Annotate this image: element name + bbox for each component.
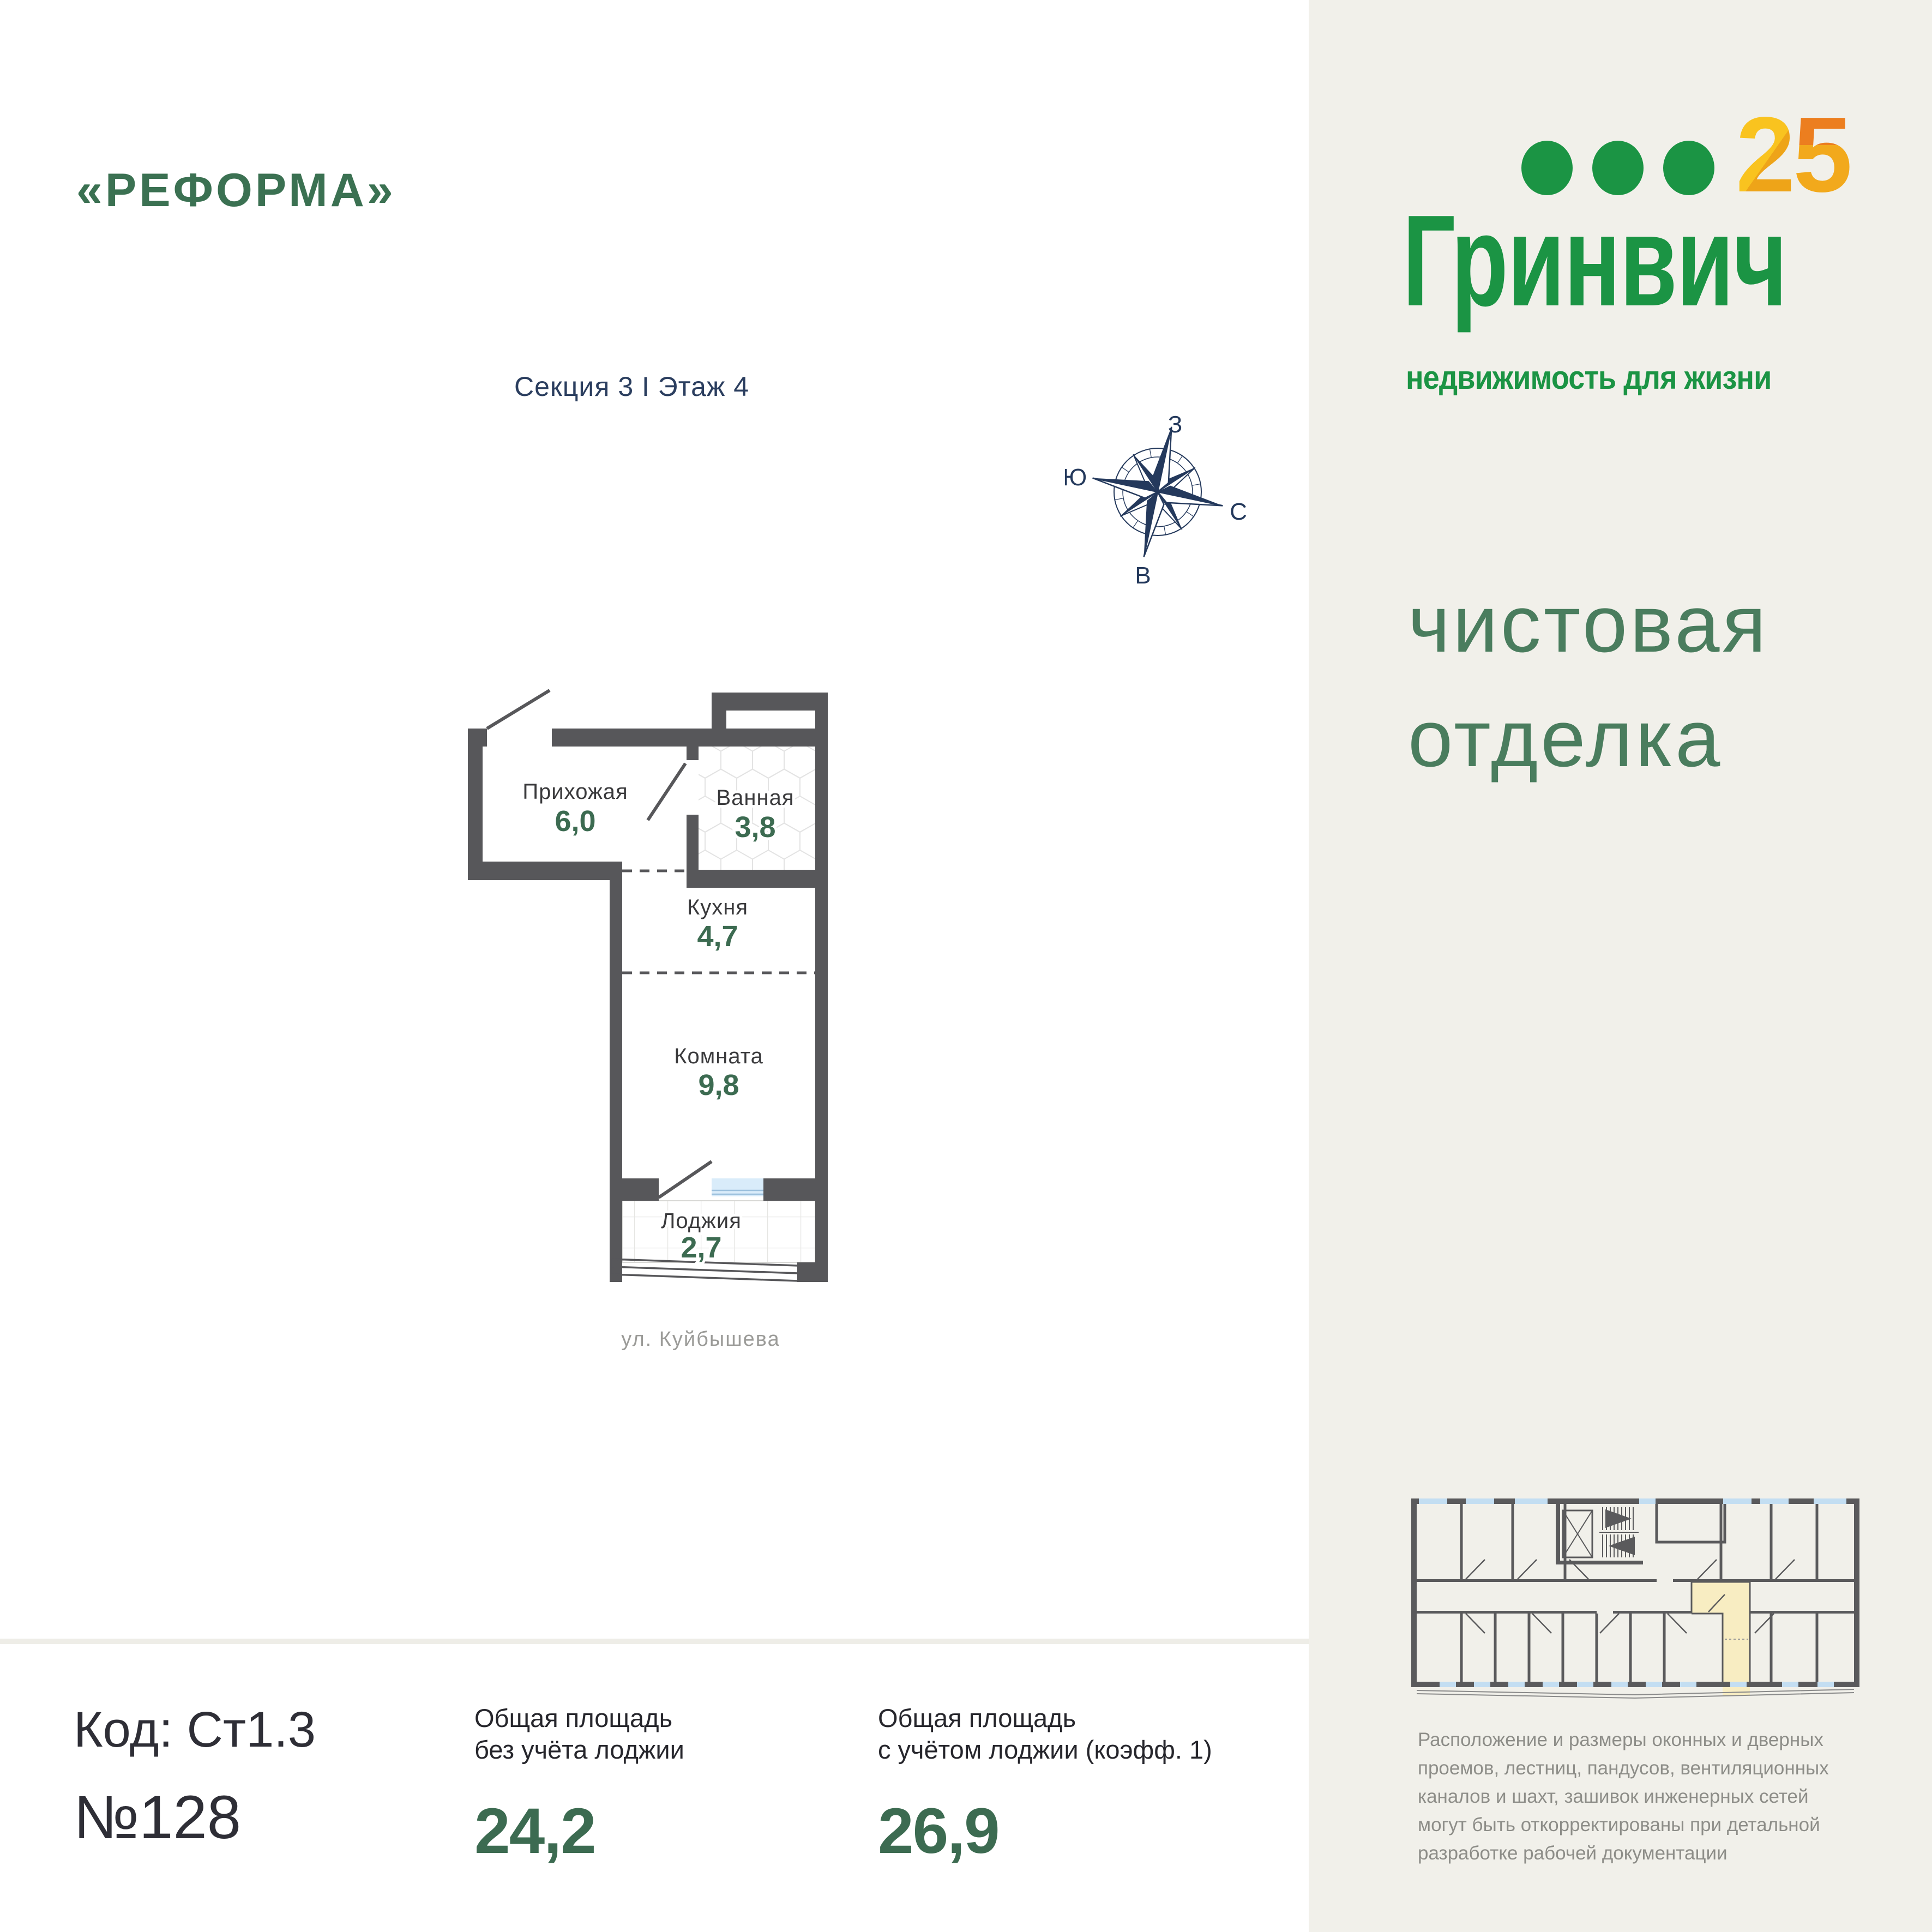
street-label: ул. Куйбышева: [564, 1328, 837, 1351]
mini-footprint-line: [1417, 1689, 1854, 1698]
balcony-door-swing: [659, 1161, 712, 1197]
bathroom-door-swing: [648, 763, 685, 820]
project-title: «РЕФОРМА»: [76, 164, 396, 218]
entry-door-swing: [487, 690, 550, 729]
compass-rose-icon: З Ю С В: [1065, 400, 1250, 585]
divider-line: [0, 1639, 1309, 1644]
disclaimer-text: Расположение и размеры оконных и дверных…: [1418, 1726, 1887, 1868]
flat-number: №128: [74, 1782, 241, 1852]
door-swings: [487, 690, 712, 1197]
compass-label-west: З: [1168, 411, 1183, 438]
balcony-window: [712, 1178, 763, 1196]
area2-label-line1: Общая площадь: [878, 1702, 1212, 1734]
logo-tagline: недвижимость для жизни: [1406, 360, 1771, 396]
room-area-bathroom: 3,8: [735, 811, 775, 844]
mini-corridor-walls: [1417, 1579, 1854, 1614]
area1-label-line2: без учёта лоджии: [474, 1734, 684, 1766]
room-area-hallway: 6,0: [555, 805, 595, 838]
apartment-floor-plan: Прихожая 6,0 Ванная 3,8 Кухня 4,7 Комнат…: [468, 688, 828, 1295]
area-without-loggia-value: 24,2: [474, 1794, 595, 1868]
compass-label-south: Ю: [1065, 464, 1087, 491]
room-name-bathroom: Ванная: [716, 786, 794, 810]
room-name-hallway: Прихожая: [522, 780, 628, 804]
area-without-loggia-label: Общая площадь без учёта лоджии: [474, 1702, 684, 1766]
compass-label-east: В: [1135, 562, 1151, 585]
compass-label-north: С: [1230, 498, 1247, 525]
room-area-loggia: 2,7: [681, 1231, 721, 1264]
room-name-room: Комната: [674, 1044, 763, 1068]
room-area-kitchen: 4,7: [697, 920, 738, 953]
area2-label-line2: с учётом лоджии (коэфф. 1): [878, 1734, 1212, 1766]
room-area-room: 9,8: [698, 1069, 739, 1102]
disclaimer-line: проемов, лестниц, пандусов, вентиляционн…: [1418, 1754, 1887, 1783]
vestibule-walls: [1657, 1504, 1725, 1542]
area-with-loggia-value: 26,9: [878, 1794, 999, 1868]
logo-brand-name: Гринвич: [1403, 196, 1786, 326]
room-name-kitchen: Кухня: [687, 895, 748, 919]
section-floor-label: Секция 3 I Этаж 4: [514, 371, 749, 402]
disclaimer-line: каналов и шахт, зашивок инженерных сетей: [1418, 1783, 1887, 1811]
disclaimer-line: Расположение и размеры оконных и дверных: [1418, 1726, 1887, 1754]
room-name-loggia: Лоджия: [661, 1209, 742, 1233]
finish-line-1: чистовая: [1408, 567, 1769, 682]
disclaimer-line: могут быть откорректированы при детально…: [1418, 1811, 1887, 1839]
stair-core: [1556, 1504, 1725, 1564]
logo-digit-5: 5: [1793, 95, 1850, 214]
disclaimer-line: разработке рабочей документации: [1418, 1839, 1887, 1868]
logo-circle-icon: [1592, 141, 1644, 195]
finish-line-2: отделка: [1408, 682, 1769, 796]
mini-dividers: [1461, 1504, 1817, 1682]
compass-star: [1079, 413, 1236, 570]
area-with-loggia-label: Общая площадь с учётом лоджии (коэфф. 1): [878, 1702, 1212, 1766]
flat-code: Код: Ст1.3: [74, 1701, 316, 1759]
mini-outer-walls: [1411, 1498, 1859, 1687]
finish-type-label: чистовая отделка: [1408, 567, 1769, 796]
area1-label-line1: Общая площадь: [474, 1702, 684, 1734]
logo-circle-icon: [1521, 141, 1573, 195]
mini-floor-plan: [1411, 1498, 1859, 1701]
logo-circle-icon: [1663, 141, 1714, 195]
